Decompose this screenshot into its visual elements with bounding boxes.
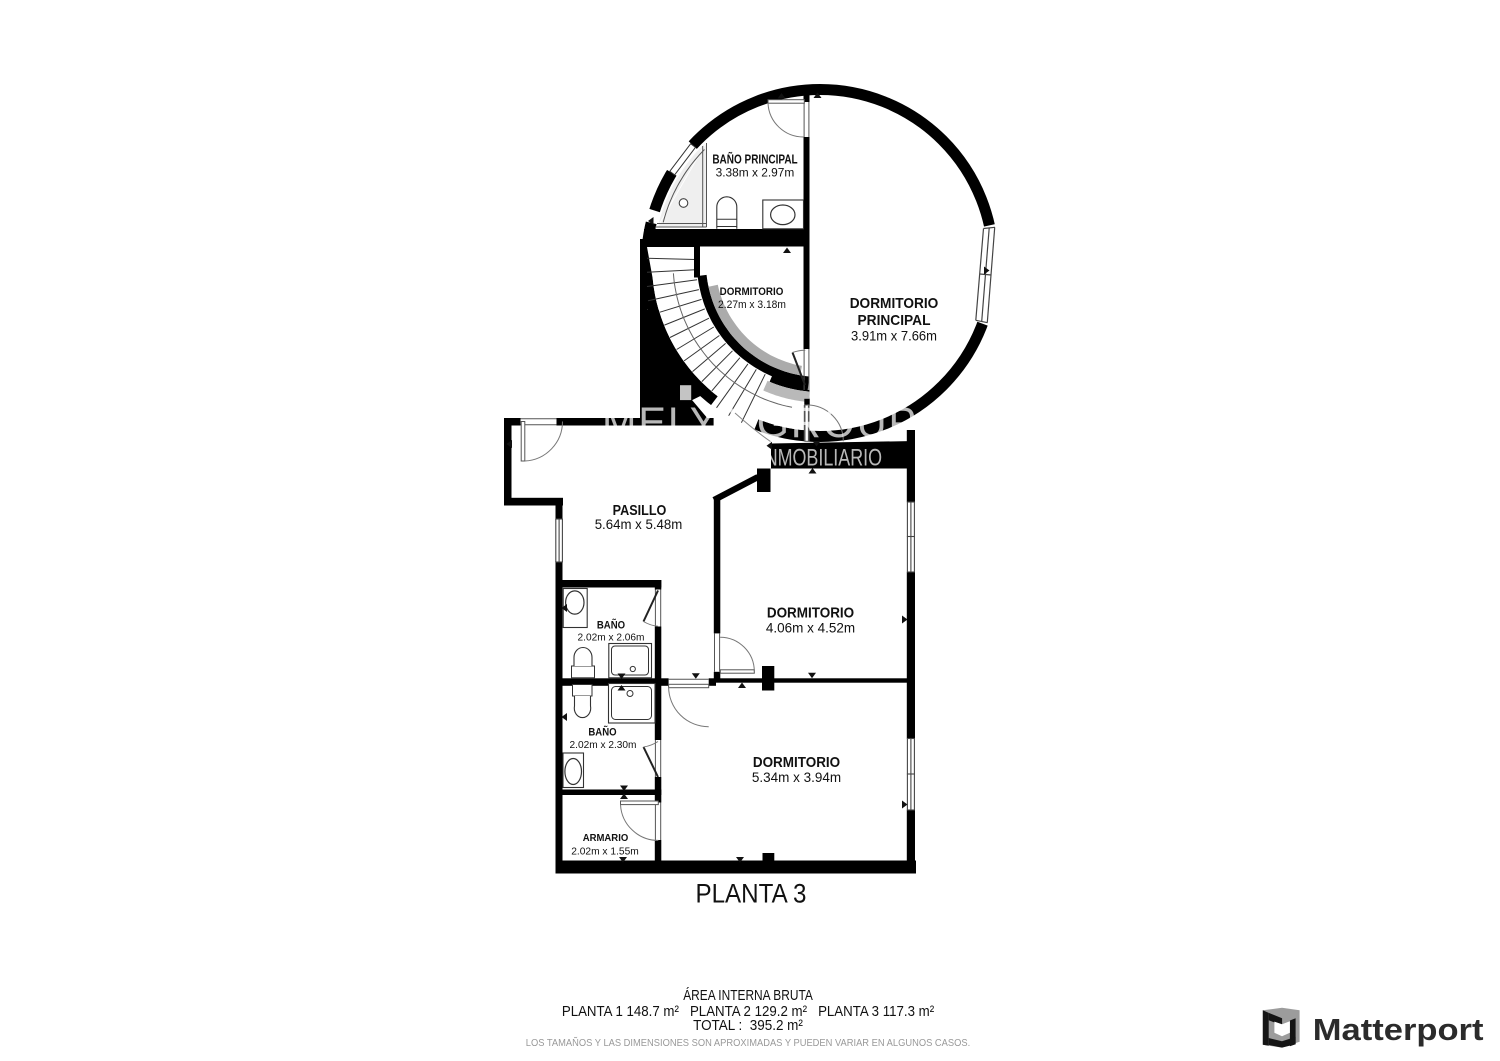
svg-text:2.02m x 2.30m: 2.02m x 2.30m	[570, 739, 637, 751]
svg-text:LOS TAMAÑOS Y LAS DIMENSIONES: LOS TAMAÑOS Y LAS DIMENSIONES SON APROXI…	[526, 1036, 970, 1049]
svg-text:TOTAL : 395.2 m²: TOTAL : 395.2 m²	[693, 1017, 803, 1034]
svg-text:BAÑO: BAÑO	[588, 726, 617, 739]
svg-text:DORMITORIO: DORMITORIO	[850, 295, 939, 312]
svg-text:5.64m x 5.48m: 5.64m x 5.48m	[595, 517, 683, 532]
svg-text:4.06m x 4.52m: 4.06m x 4.52m	[766, 620, 855, 636]
svg-text:BAÑO: BAÑO	[597, 619, 626, 632]
svg-text:ÁREA INTERNA BRUTA: ÁREA INTERNA BRUTA	[683, 987, 813, 1004]
svg-text:3.91m x 7.66m: 3.91m x 7.66m	[851, 328, 937, 344]
svg-text:REAL ESTATES | INMOBILIARIO: REAL ESTATES | INMOBILIARIO	[618, 445, 882, 472]
svg-text:2.27m x 3.18m: 2.27m x 3.18m	[718, 299, 786, 311]
svg-text:BAÑO PRINCIPAL: BAÑO PRINCIPAL	[712, 152, 797, 167]
svg-text:ARMARIO: ARMARIO	[583, 832, 629, 844]
svg-text:5.34m x 3.94m: 5.34m x 3.94m	[752, 769, 841, 785]
svg-text:PLANTA 3: PLANTA 3	[696, 879, 807, 909]
svg-text:2.02m x 2.06m: 2.02m x 2.06m	[578, 632, 645, 644]
svg-text:2.02m x 1.55m: 2.02m x 1.55m	[571, 846, 639, 858]
svg-text:3.38m x 2.97m: 3.38m x 2.97m	[716, 166, 795, 180]
svg-text:PRINCIPAL: PRINCIPAL	[858, 312, 931, 329]
svg-text:DORMITORIO: DORMITORIO	[720, 286, 784, 298]
svg-text:MELYA GROUP: MELYA GROUP	[602, 399, 918, 447]
svg-text:Matterport: Matterport	[1313, 1012, 1484, 1047]
